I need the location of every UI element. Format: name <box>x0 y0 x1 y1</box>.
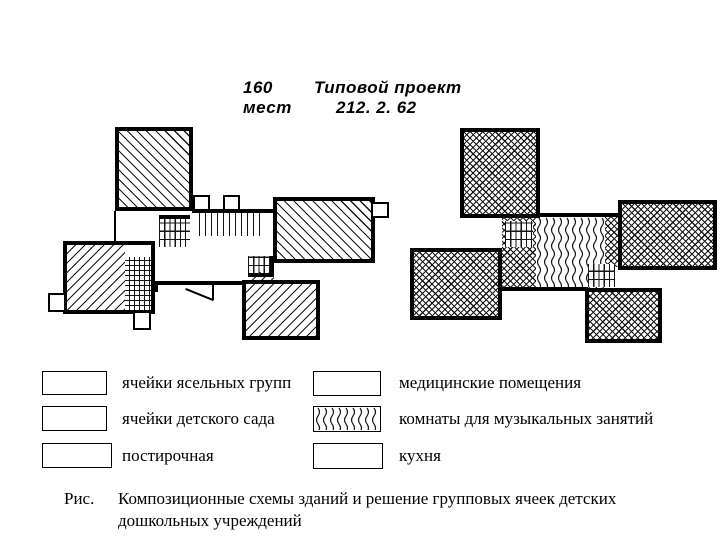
diagonal-back-hatch-icon <box>42 371 107 395</box>
legend-label-kindergarten: ячейки детского сада <box>122 409 275 429</box>
left-plan-medical-zone <box>199 213 263 236</box>
left-plan-door-stub-1 <box>193 195 210 209</box>
left-plan-laundry-zone <box>125 257 151 310</box>
left-plan-nursery-block-top <box>115 127 193 211</box>
legend-label-laundry: постирочная <box>122 446 214 466</box>
left-plan-door-swing <box>185 288 213 301</box>
legend-label-medical: медицинские помещения <box>399 373 581 393</box>
vertical-lines-hatch-icon <box>313 371 381 396</box>
left-plan-wall-connector <box>114 211 116 242</box>
left-plan-kitchen-block <box>242 280 320 340</box>
right-plan-kindergarten-block-right <box>618 200 717 270</box>
project-number: 212. 2. 62 <box>336 98 417 118</box>
left-plan-nursery-block-right <box>273 197 375 263</box>
legend-label-music: комнаты для музыкальных занятий <box>399 409 653 429</box>
right-plan-kindergarten-block-left <box>410 248 502 320</box>
left-plan-corridor-wall-2 <box>155 281 246 285</box>
wavy-lines-hatch-icon <box>313 406 381 432</box>
figure-page: 160 мест Типовой проект 212. 2. 62 <box>0 0 722 550</box>
left-plan-door-stub-west <box>48 293 64 312</box>
crosshatch-icon <box>42 406 107 431</box>
legend-label-nursery: ячейки ясельных групп <box>122 373 291 393</box>
right-plan-crosshatch-filler <box>605 217 618 267</box>
left-plan-kitchen-zone <box>67 245 125 310</box>
left-plan-kitchen-laundry-block <box>63 241 155 314</box>
legend-label-kitchen: кухня <box>399 446 441 466</box>
caption-prefix: Рис. <box>64 488 94 510</box>
diagonal-forward-hatch-icon <box>313 443 383 469</box>
project-title: Типовой проект <box>314 78 462 98</box>
right-plan-staircase-2 <box>588 264 615 287</box>
caption-text: Композиционные схемы зданий и решение гр… <box>118 488 623 533</box>
left-plan-wall-tick <box>155 281 158 292</box>
right-plan-staircase-1 <box>505 221 533 247</box>
left-plan-staircase-1 <box>159 215 190 247</box>
right-plan-wall-bottom <box>500 287 588 291</box>
left-plan-door-stub-south <box>133 313 151 330</box>
capacity-value: 160 <box>243 78 273 98</box>
left-plan-door-leaf <box>212 285 214 300</box>
left-plan-door-stub-2 <box>223 195 240 209</box>
left-plan-door-stub-right <box>373 202 389 218</box>
capacity-unit: мест <box>243 98 292 118</box>
right-plan-kindergarten-block-bottom <box>585 288 662 343</box>
right-plan-kindergarten-block-top <box>460 128 540 218</box>
grid-hatch-icon <box>42 443 112 468</box>
